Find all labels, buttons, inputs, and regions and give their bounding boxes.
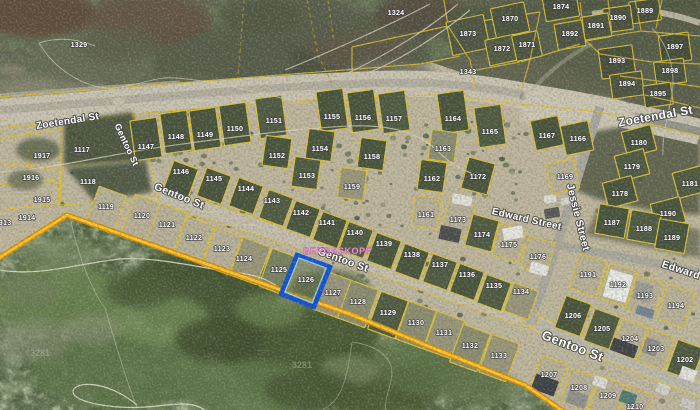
svg-text:1870: 1870: [502, 14, 519, 23]
svg-text:1151: 1151: [266, 116, 282, 125]
svg-text:1134: 1134: [513, 287, 529, 296]
svg-text:1174: 1174: [474, 230, 490, 239]
svg-text:1206: 1206: [565, 311, 582, 320]
svg-text:1132: 1132: [462, 341, 478, 350]
svg-text:1144: 1144: [238, 184, 254, 193]
svg-text:1192: 1192: [610, 280, 626, 289]
svg-text:1205: 1205: [594, 324, 611, 333]
svg-text:1889: 1889: [637, 6, 654, 15]
svg-text:1131: 1131: [436, 328, 452, 337]
svg-text:1126: 1126: [298, 275, 314, 284]
svg-text:1122: 1122: [186, 233, 202, 242]
svg-text:1145: 1145: [206, 174, 222, 183]
svg-text:1193: 1193: [637, 291, 653, 300]
svg-text:1203: 1203: [648, 344, 665, 353]
svg-text:1916: 1916: [23, 173, 40, 182]
svg-text:1191: 1191: [580, 270, 596, 279]
svg-text:1148: 1148: [168, 132, 184, 141]
svg-text:3281: 3281: [292, 360, 312, 370]
svg-text:1154: 1154: [312, 144, 328, 153]
svg-text:1871: 1871: [519, 40, 536, 49]
svg-text:1140: 1140: [347, 228, 363, 237]
svg-text:1873: 1873: [460, 29, 477, 38]
svg-text:1209: 1209: [600, 391, 617, 400]
svg-text:1913: 1913: [0, 218, 11, 227]
svg-text:1173: 1173: [450, 215, 466, 224]
svg-text:1125: 1125: [271, 265, 287, 274]
svg-text:1164: 1164: [445, 114, 461, 123]
svg-text:1163: 1163: [435, 144, 451, 153]
svg-text:1146: 1146: [173, 167, 189, 176]
svg-text:1893: 1893: [609, 56, 626, 65]
svg-text:1872: 1872: [494, 44, 511, 53]
svg-text:1897: 1897: [667, 42, 684, 51]
svg-text:1157: 1157: [386, 114, 402, 123]
svg-text:1324: 1324: [388, 8, 405, 17]
svg-text:1179: 1179: [624, 162, 640, 171]
svg-text:1914: 1914: [19, 213, 36, 222]
svg-text:1180: 1180: [631, 138, 647, 147]
svg-text:1178: 1178: [612, 189, 628, 198]
svg-text:1204: 1204: [622, 334, 639, 343]
svg-text:1329: 1329: [71, 40, 88, 49]
svg-text:1169: 1169: [557, 172, 573, 181]
svg-text:3281: 3281: [30, 348, 50, 358]
svg-text:1139: 1139: [376, 239, 392, 248]
svg-text:1166: 1166: [570, 134, 586, 143]
svg-text:1150: 1150: [227, 124, 243, 133]
svg-text:1874: 1874: [553, 2, 570, 11]
svg-text:1898: 1898: [662, 66, 679, 75]
svg-text:1143: 1143: [264, 196, 280, 205]
svg-text:1181: 1181: [682, 179, 698, 188]
svg-text:1117: 1117: [74, 145, 90, 154]
svg-text:1118: 1118: [80, 177, 96, 186]
svg-text:1158: 1158: [364, 152, 380, 161]
svg-text:1175: 1175: [501, 240, 517, 249]
svg-text:1127: 1127: [325, 288, 341, 297]
svg-text:1208: 1208: [571, 383, 588, 392]
svg-text:1892: 1892: [562, 29, 579, 38]
svg-text:1156: 1156: [355, 113, 371, 122]
svg-text:1890: 1890: [610, 13, 627, 22]
svg-text:1152: 1152: [269, 151, 285, 160]
svg-text:BERGASKOPF: BERGASKOPF: [303, 246, 372, 256]
svg-text:1149: 1149: [197, 130, 213, 139]
svg-text:1176: 1176: [530, 252, 546, 261]
svg-text:1119: 1119: [98, 202, 114, 211]
svg-text:1207: 1207: [541, 370, 558, 379]
svg-text:1194: 1194: [668, 301, 684, 310]
svg-text:1133: 1133: [491, 351, 507, 360]
svg-text:1138: 1138: [404, 250, 420, 259]
svg-text:1137: 1137: [432, 260, 448, 269]
svg-text:1124: 1124: [236, 254, 252, 263]
svg-text:1167: 1167: [539, 131, 555, 140]
svg-text:1188: 1188: [636, 224, 652, 233]
svg-text:1161: 1161: [418, 210, 434, 219]
svg-text:1155: 1155: [324, 112, 340, 121]
svg-text:1190: 1190: [660, 209, 676, 218]
svg-text:1210: 1210: [627, 402, 644, 410]
svg-text:1123: 1123: [214, 244, 230, 253]
svg-text:1128: 1128: [350, 297, 366, 306]
svg-text:1147: 1147: [138, 142, 154, 151]
svg-text:1189: 1189: [664, 233, 680, 242]
svg-text:1121: 1121: [159, 220, 175, 229]
svg-text:1891: 1891: [588, 21, 605, 30]
svg-text:1162: 1162: [424, 174, 440, 183]
svg-text:1120: 1120: [134, 211, 150, 220]
svg-text:1917: 1917: [34, 151, 51, 160]
svg-text:1159: 1159: [344, 182, 360, 191]
svg-text:1141: 1141: [319, 218, 335, 227]
svg-text:1153: 1153: [299, 171, 315, 180]
svg-text:1130: 1130: [408, 318, 424, 327]
svg-text:1187: 1187: [604, 218, 620, 227]
svg-text:1142: 1142: [293, 208, 309, 217]
svg-text:1343: 1343: [460, 67, 477, 76]
svg-text:1894: 1894: [619, 79, 636, 88]
svg-text:1136: 1136: [459, 270, 475, 279]
svg-text:1135: 1135: [486, 281, 502, 290]
svg-text:1202: 1202: [677, 355, 694, 364]
svg-text:1172: 1172: [470, 172, 486, 181]
svg-text:1165: 1165: [482, 127, 498, 136]
svg-text:1129: 1129: [380, 308, 396, 317]
svg-text:1895: 1895: [650, 89, 667, 98]
svg-text:1915: 1915: [34, 195, 51, 204]
